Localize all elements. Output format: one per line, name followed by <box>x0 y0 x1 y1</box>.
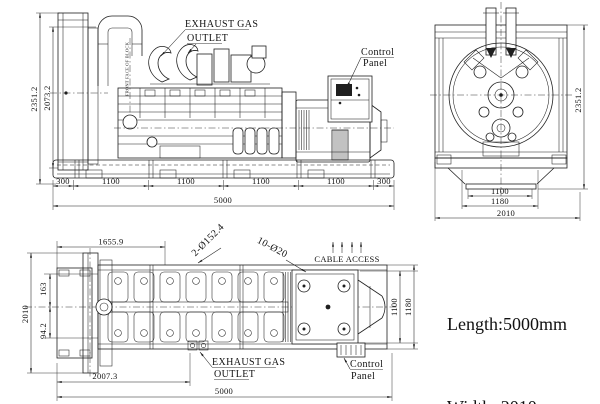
exhaust-outlet-label-plan: EXHAUST GAS OUTLET <box>200 352 285 380</box>
spec-text-block: Length:5000mm Width: 2010mm Height:2351m… <box>447 256 600 404</box>
dim-163: 163 <box>38 274 98 307</box>
control-panel-side <box>328 76 372 122</box>
dim-seg-1100-1: 1100 <box>102 176 120 186</box>
dim-1655-9-text: 1655.9 <box>98 237 123 247</box>
dim-seg-300-left: 300 <box>56 176 70 186</box>
panel-text: Panel <box>363 58 387 69</box>
dim-2010-plan-text: 2010 <box>20 305 30 323</box>
front-end-view: 2351.2 1100 1180 2010 <box>428 0 600 232</box>
control-panel-screen <box>336 84 352 96</box>
alternator-rear-vent <box>332 130 348 160</box>
dim-2073-2: 2073.2 <box>42 85 52 110</box>
spec-length: Length:5000mm <box>447 311 600 339</box>
dim-1655-9: 1655.9 <box>57 237 165 269</box>
hole-callout-small: 10-Ø20 <box>255 235 306 272</box>
dim-1100-front: 1100 <box>491 186 509 196</box>
outlet-text-plan: OUTLET <box>214 369 255 380</box>
exhaust-gas-text: EXHAUST GAS <box>185 19 258 30</box>
engine-cylinders-plan <box>108 272 288 350</box>
dim-seg-300-right: 300 <box>377 176 391 186</box>
fan-and-engine-front <box>430 2 572 196</box>
dim-seg-1100-3: 1100 <box>252 176 270 186</box>
panel-text-plan: Panel <box>351 371 375 382</box>
spec-width: Width: 2010mm <box>447 394 600 404</box>
alternator-front-vent <box>299 110 309 150</box>
dim-1180-plan-text: 1180 <box>403 298 413 316</box>
dim-5000-plan-text: 5000 <box>215 386 233 396</box>
dim-2351-2: 2351.2 <box>29 86 39 111</box>
control-text: Control <box>361 47 394 58</box>
dim-1180-front: 1180 <box>491 196 509 206</box>
plan-top-view: CABLE ACCESS 2-Ø152.4 10-Ø20 EXHAUST GAS… <box>0 218 432 404</box>
radiator-side <box>50 13 108 170</box>
holes-10-d20-text: 10-Ø20 <box>255 235 289 260</box>
air-pipe <box>98 16 142 86</box>
cable-access-label: CABLE ACCESS <box>314 242 379 264</box>
exhaust-outlet-label-side: EXHAUST GAS OUTLET <box>161 19 258 56</box>
alternator-plan <box>283 270 385 344</box>
exhaust-gas-text-plan: EXHAUST GAS <box>212 357 285 368</box>
dim-total-length-side: 5000 <box>53 195 394 206</box>
exhaust-assembly <box>149 44 270 85</box>
genset-drawing-sheet: FRONT FACE OF BLOCK <box>0 0 600 404</box>
outlet-text: OUTLET <box>187 33 228 44</box>
dim-1100-plan-text: 1100 <box>389 298 399 316</box>
cable-access-text: CABLE ACCESS <box>314 254 379 264</box>
dim-seg-1100-2: 1100 <box>177 176 195 186</box>
dim-163-text: 163 <box>38 282 48 296</box>
hole-callout-large: 2-Ø152.4 <box>190 222 227 263</box>
dim-2010-front: 2010 <box>497 208 515 218</box>
side-elevation-view: FRONT FACE OF BLOCK <box>0 0 432 212</box>
dims-bottom-front: 1100 1180 2010 <box>435 162 580 221</box>
dim-seg-1100-4: 1100 <box>327 176 345 186</box>
dim-2010-plan: 2010 <box>20 253 83 373</box>
dim-94-2: 94.2 <box>38 307 98 339</box>
dim-2351-2-front: 2351.2 <box>573 87 583 112</box>
dim-94-2-text: 94.2 <box>38 323 48 339</box>
holes-2-d152-text: 2-Ø152.4 <box>190 222 227 259</box>
control-text-plan: Control <box>350 359 383 370</box>
dim-2007-3-text: 2007.3 <box>92 371 117 381</box>
dim-5000-side: 5000 <box>214 195 232 205</box>
